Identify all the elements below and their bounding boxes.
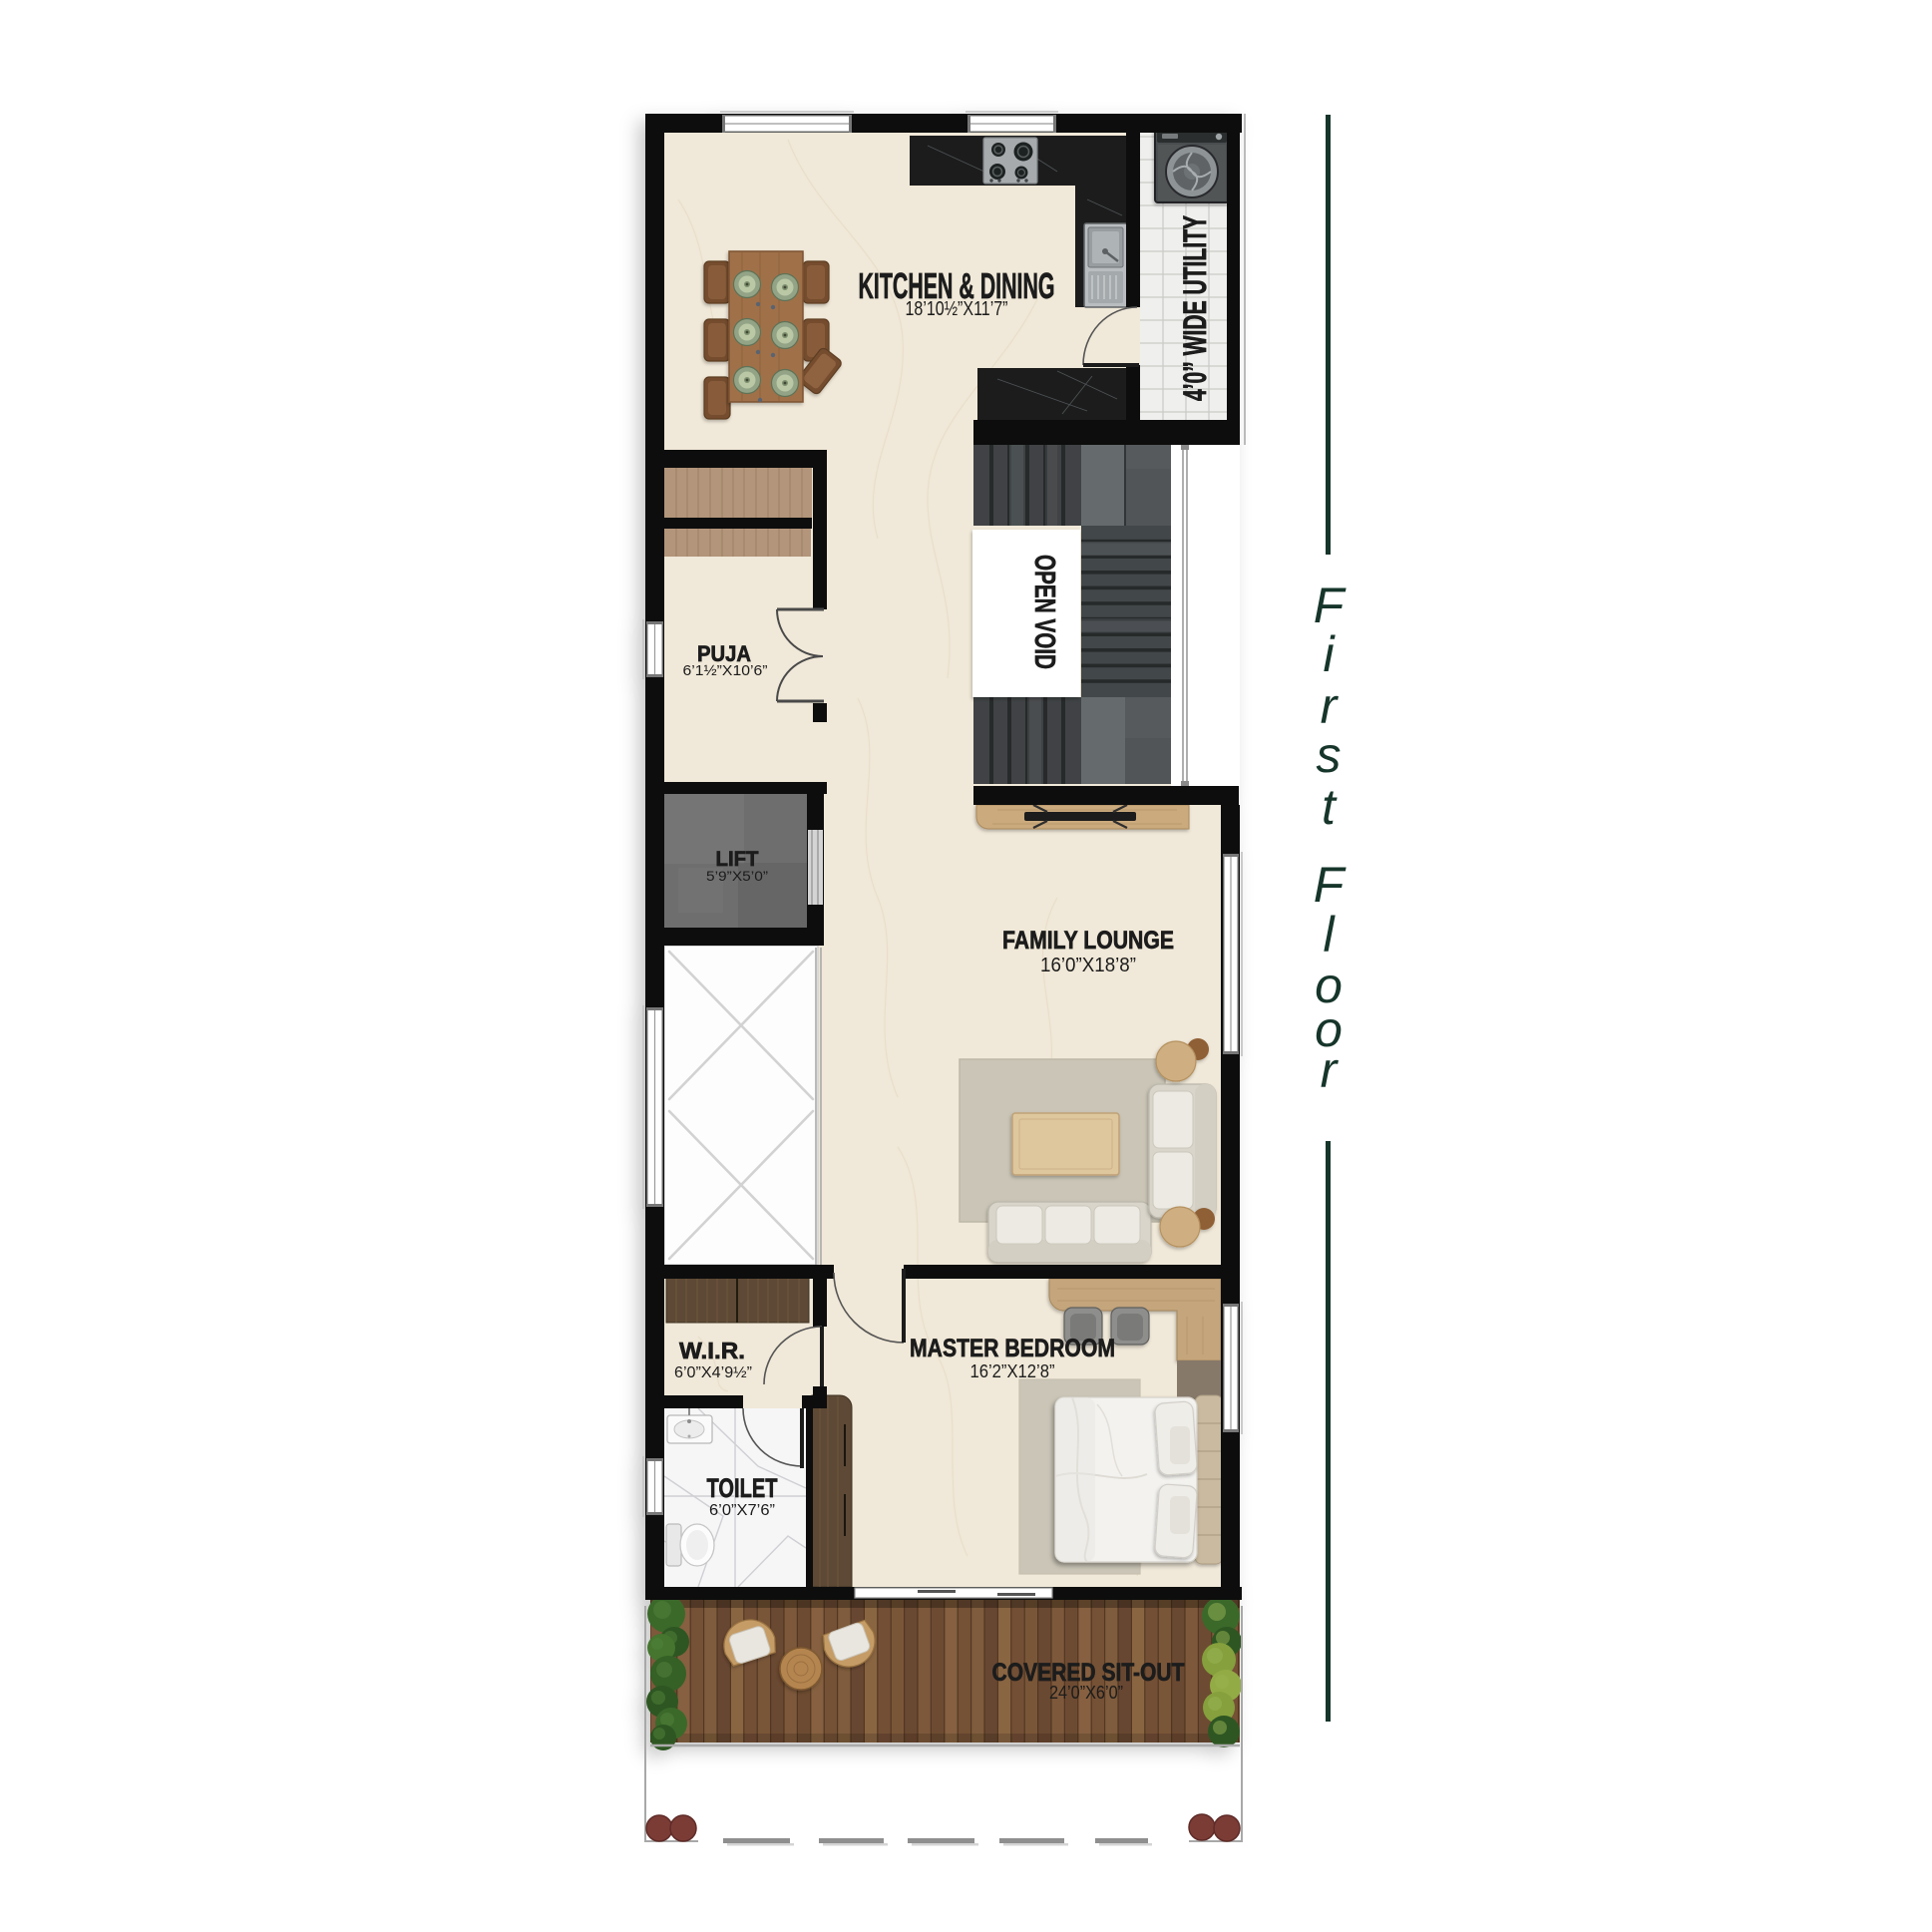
svg-text:OPEN VOID: OPEN VOID [1028,555,1060,669]
svg-text:6’0”X7’6”: 6’0”X7’6” [709,1502,775,1519]
svg-text:F: F [1314,857,1347,913]
svg-text:i: i [1323,626,1336,682]
svg-text:l: l [1323,907,1336,963]
svg-text:24’0”X6’0”: 24’0”X6’0” [1049,1683,1123,1703]
svg-text:TOILET: TOILET [707,1473,778,1503]
svg-text:t: t [1322,779,1338,835]
svg-text:s: s [1317,727,1342,783]
svg-text:FAMILY LOUNGE: FAMILY LOUNGE [1002,927,1174,955]
svg-text:6’1½”X10’6”: 6’1½”X10’6” [683,662,768,679]
svg-text:16’2”X12’8”: 16’2”X12’8” [970,1361,1055,1381]
svg-text:16’0”X18’8”: 16’0”X18’8” [1040,955,1136,976]
svg-text:18’10½”X11’7”: 18’10½”X11’7” [906,298,1008,320]
svg-text:MASTER BEDROOM: MASTER BEDROOM [910,1335,1115,1362]
svg-text:5’9”X5’0”: 5’9”X5’0” [706,868,768,884]
svg-text:W.I.R.: W.I.R. [679,1338,745,1363]
svg-text:F: F [1314,578,1347,633]
svg-text:r: r [1321,678,1340,734]
svg-text:4’0” WIDE UTILITY: 4’0” WIDE UTILITY [1177,215,1213,401]
svg-text:6’0”X4’9½”: 6’0”X4’9½” [674,1364,752,1381]
svg-text:r: r [1321,1042,1340,1098]
